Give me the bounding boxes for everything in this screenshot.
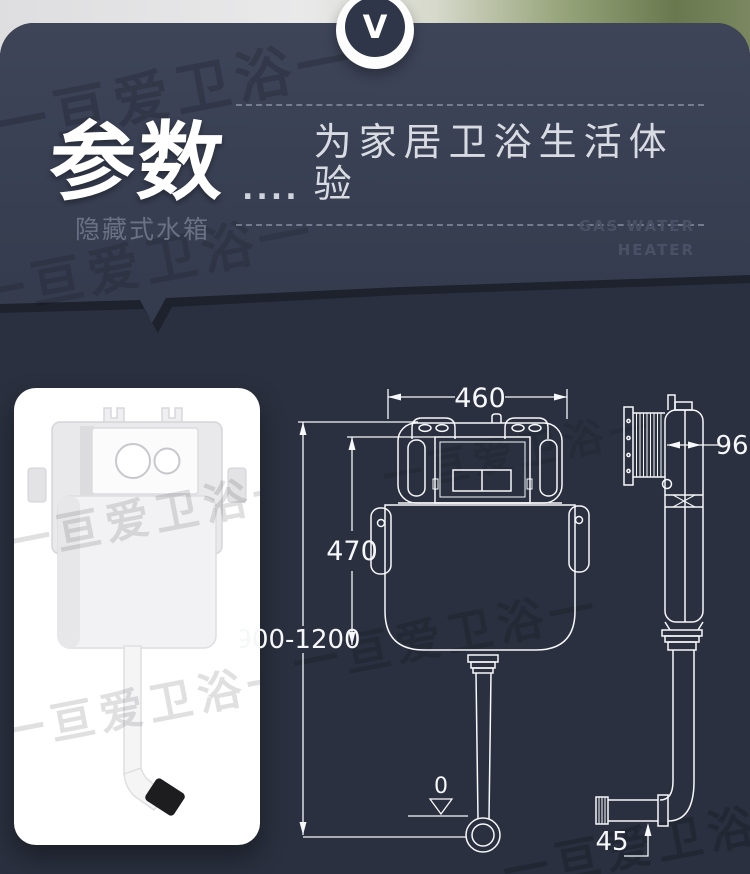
inlet-stub [668,395,675,410]
cistern-lower-tank [58,496,216,648]
top-knob [492,414,501,423]
dimension-label-width: 460 [454,383,506,414]
flush-outlet-pipe [124,646,186,817]
dimension-outlet-height-45: 45 [595,823,651,857]
tagline-block: .... 为家居卫浴生活体验 [236,104,704,226]
page-title: 参数 [46,92,231,217]
dimension-width-460: 460 [388,383,567,419]
dimension-label-body-height: 470 [326,536,378,567]
tagline-text: 为家居卫浴生活体验 [314,122,704,206]
main-tank-body [385,505,575,650]
product-photo-card: 一亘爱卫浴一 一亘爱卫浴一 [14,388,260,845]
product-label: 隐藏式水箱 [75,210,210,246]
tank-profile [665,410,703,622]
dimension-body-height-470: 470 [326,437,378,645]
dimension-depth-96: 96 [667,431,749,461]
caption-line-1: GAS WATER [579,214,695,238]
side-slot-left [408,440,425,496]
ellipsis-dots-icon: .... [242,179,300,200]
side-view-outlet-pipe [596,622,703,826]
outlet-circle [466,818,500,852]
telescopic-ribs [633,413,661,477]
caption-line-2: HEATER [579,238,695,262]
dimension-label-depth: 96 [715,431,748,461]
dimension-install-height-900-1200: 900-1200 [240,422,466,837]
front-view-tank [371,414,589,650]
side-view-drawing: 96 45 [580,383,750,874]
v-badge-letter: V [363,8,388,46]
datum-zero-label: 0 [434,774,448,799]
product-photo [14,388,260,845]
side-view-tank [624,395,703,622]
side-slot-right [540,440,557,496]
floor-datum-symbol: 0 [408,774,468,816]
dimension-label-install-height: 900-1200 [240,625,361,655]
front-view-flush-pipe [466,655,500,852]
dimension-label-outlet-height: 45 [595,827,628,857]
gas-water-heater-caption: GAS WATER HEATER [579,214,695,262]
union-joint [665,495,703,507]
promo-page: 一亘爱卫浴一 一亘爱卫浴一 一亘爱卫浴一 一亘爱卫浴一 一亘爱卫浴一 V 参数 … [0,0,750,874]
front-view-drawing: 460 900-1200 470 [240,383,600,865]
